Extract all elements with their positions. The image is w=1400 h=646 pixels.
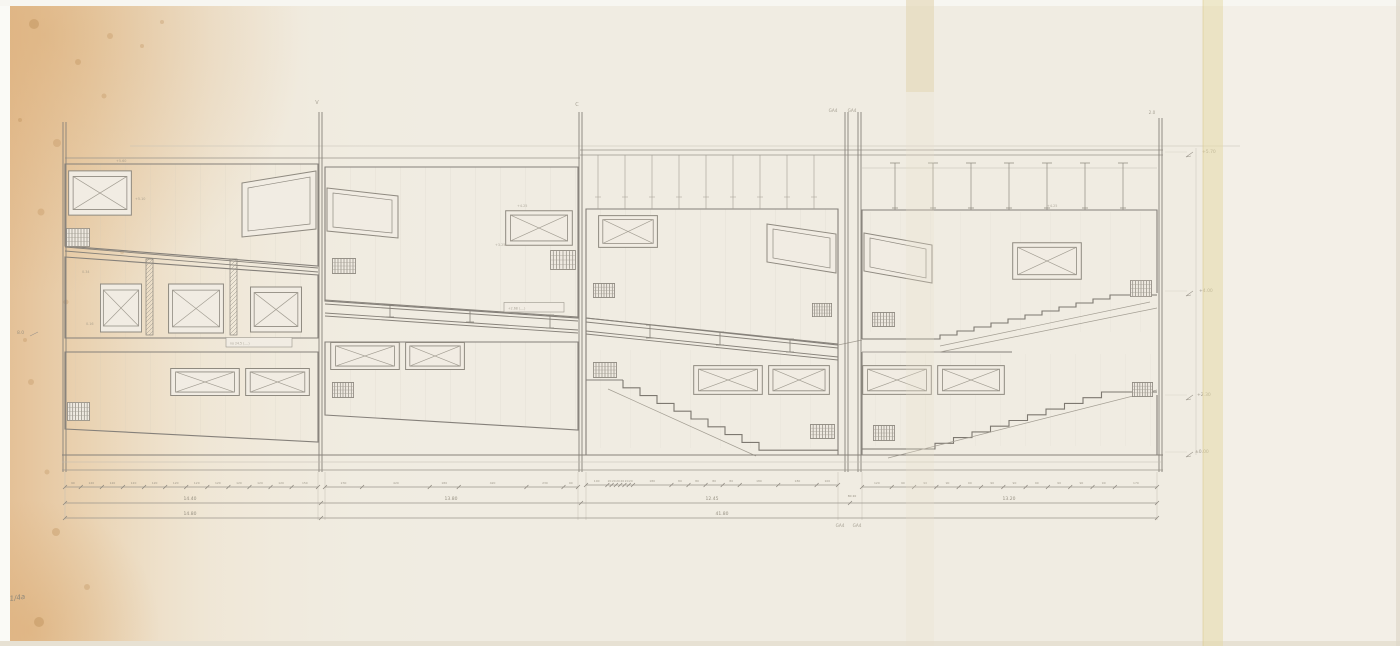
grille (67, 403, 89, 421)
chain-dim-label: 120 (110, 481, 116, 485)
x-window (769, 366, 830, 395)
grid-label-top-d1: GA4 (829, 108, 838, 113)
level-value-left: 8.0 (17, 330, 24, 336)
chain-dim-label: 120 (874, 481, 880, 485)
x-door (251, 287, 302, 332)
ramp-note: +2.68 (....) (508, 307, 525, 311)
chain-dim-label: 180 (649, 479, 655, 483)
chain-dim-label: 120 (257, 481, 263, 485)
grid-label-top-c: C (575, 102, 579, 108)
grille (1130, 280, 1151, 296)
elevation-mark: +4.25 (517, 204, 527, 208)
chain-dim-label: 120 (88, 481, 94, 485)
chain-dim-label: 80 (729, 479, 733, 483)
chain-dim-label: 120 (215, 481, 221, 485)
grille (811, 424, 835, 438)
chain-dim-label: 100 (824, 479, 830, 483)
x-window (246, 369, 310, 396)
grille (812, 303, 831, 316)
paper-edge-right (1396, 0, 1400, 646)
paper-edge-left (0, 0, 10, 646)
chain-dim-label: 90 (1013, 481, 1017, 485)
grille (333, 258, 356, 273)
chain-dim-label: 100 (594, 479, 600, 483)
grille (1132, 382, 1152, 396)
tape-strip-top (906, 0, 934, 92)
chain-dim-label: 80 (695, 479, 699, 483)
chain-dim-label: 90 (946, 481, 950, 485)
elevation-mark: +5.60 (116, 159, 126, 163)
chain-dim-label: 120 (278, 481, 284, 485)
x-door (169, 284, 224, 333)
elevation-mark: +3.25 (495, 243, 505, 247)
paper-backing-right (1223, 0, 1400, 646)
grid-label-top-e: 2.0 (1149, 110, 1156, 115)
bay-a-lower-room (65, 352, 318, 442)
elevation-mark: +5.10 (135, 197, 145, 201)
column-dim: 80 20 (848, 494, 857, 498)
room-note: no 24.5 (....) (230, 342, 250, 346)
overall-total: 41.80 (716, 511, 729, 517)
chain-dim-label: 120 (173, 481, 179, 485)
vertical-crease (906, 0, 934, 646)
chain-dim-label: 80 (712, 479, 716, 483)
grille (67, 229, 90, 247)
chain-dim-label: 420 (393, 481, 399, 485)
grille (872, 312, 894, 326)
chain-dim-label: 90 (1079, 481, 1083, 485)
chain-dim-label: 180 (795, 479, 801, 483)
grid-label-bottom-d2: GA4 (853, 523, 862, 528)
paper-edge-bottom (0, 641, 1400, 646)
x-window (331, 343, 400, 370)
grille (594, 362, 617, 377)
chain-dim-label: 170 (1133, 481, 1139, 485)
chain-dim-label: 90 (1102, 481, 1106, 485)
chain-dim-label: 230 (542, 481, 548, 485)
x-window (1013, 243, 1082, 279)
grid-label-top-d2: GA4 (848, 108, 857, 113)
chain-dim-label: 120 (194, 481, 200, 485)
chain-dim-label: 120 (152, 481, 158, 485)
x-window (171, 369, 240, 396)
x-window (938, 366, 1005, 395)
grille (551, 251, 576, 270)
grid-label-bottom-d1: GA4 (836, 523, 845, 528)
x-window (694, 366, 763, 395)
chain-dim-label: 90 (990, 481, 994, 485)
bay-total: 13.20 (1003, 496, 1016, 502)
chain-dim-label: 90 (71, 481, 75, 485)
chain-dim-label: 90 (1035, 481, 1039, 485)
chain-dim-label: 90 (1057, 481, 1061, 485)
chain-dim-label: 80 (678, 479, 682, 483)
grille (332, 382, 353, 397)
scanned-drawing-sheet: 9012012012012012012012012012012015023042… (0, 0, 1400, 646)
chain-dim-label: 120 (236, 481, 242, 485)
chain-dim-label: 90 (901, 481, 905, 485)
chain-dim-label: 180 (441, 481, 447, 485)
bay-total: 13.80 (445, 496, 458, 502)
grille (593, 283, 614, 297)
chain-dim-label: 120 (131, 481, 137, 485)
chain-dim-label: 90 (968, 481, 972, 485)
bay-c-lower-room-fill (586, 350, 838, 448)
x-window (69, 171, 132, 215)
elevation-mark: 0.34 (82, 270, 90, 274)
grille (873, 425, 894, 440)
elevation-mark: 0.16 (86, 322, 94, 326)
bay-total: 14.40 (184, 496, 197, 502)
overall-total: 14.80 (184, 511, 197, 517)
x-window (599, 216, 658, 248)
chain-dim-label: 20 (629, 479, 633, 483)
paper-edge-top (0, 0, 1400, 6)
chain-dim-label: 420 (490, 481, 496, 485)
elevation-mark: +4.25 (1047, 204, 1057, 208)
grid-label-top-b: V (315, 100, 319, 106)
chain-dim-label: 180 (756, 479, 762, 483)
x-door (100, 284, 141, 332)
chain-dim-label: 230 (341, 481, 347, 485)
x-window (506, 211, 573, 246)
tape-strip-right (1203, 0, 1223, 646)
bay-total: 12.45 (706, 496, 719, 502)
chain-dim-label: 90 (569, 481, 573, 485)
drawing-canvas: 9012012012012012012012012012012015023042… (0, 0, 1400, 646)
chain-dim-label: 150 (302, 481, 308, 485)
x-window (406, 343, 465, 370)
